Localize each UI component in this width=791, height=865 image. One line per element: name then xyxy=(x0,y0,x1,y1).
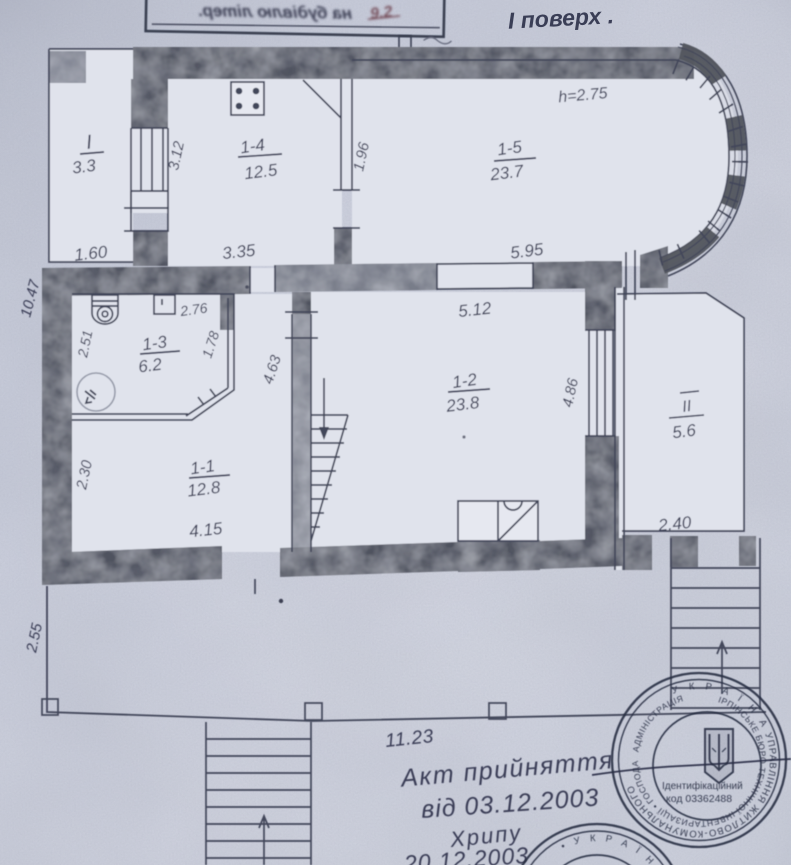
svg-text:1-1: 1-1 xyxy=(189,456,216,478)
svg-text:4.15: 4.15 xyxy=(188,519,223,541)
svg-text:1-2: 1-2 xyxy=(451,370,479,392)
svg-text:1-3: 1-3 xyxy=(141,332,169,354)
svg-text:5.6: 5.6 xyxy=(671,421,697,443)
svg-text:3.3: 3.3 xyxy=(71,156,97,178)
svg-text:6.2: 6.2 xyxy=(137,355,163,377)
svg-text:1-5: 1-5 xyxy=(496,137,524,159)
svg-text:12.5: 12.5 xyxy=(243,160,279,183)
svg-text:І поверх .: І поверх . xyxy=(507,2,614,34)
svg-text:3.35: 3.35 xyxy=(221,241,256,263)
svg-text:1-4: 1-4 xyxy=(239,135,266,157)
svg-text:код 03362488: код 03362488 xyxy=(666,793,732,805)
svg-text:на будівлю літер.: на будівлю літер. xyxy=(198,1,353,23)
svg-text:1.60: 1.60 xyxy=(73,242,108,264)
svg-text:2.40: 2.40 xyxy=(656,513,692,536)
svg-text:5.12: 5.12 xyxy=(457,299,492,321)
svg-text:5.95: 5.95 xyxy=(509,240,545,263)
svg-text:Ідентифікаційний: Ідентифікаційний xyxy=(662,780,743,792)
svg-text:12.8: 12.8 xyxy=(186,478,222,501)
svg-text:9.2: 9.2 xyxy=(369,4,393,24)
